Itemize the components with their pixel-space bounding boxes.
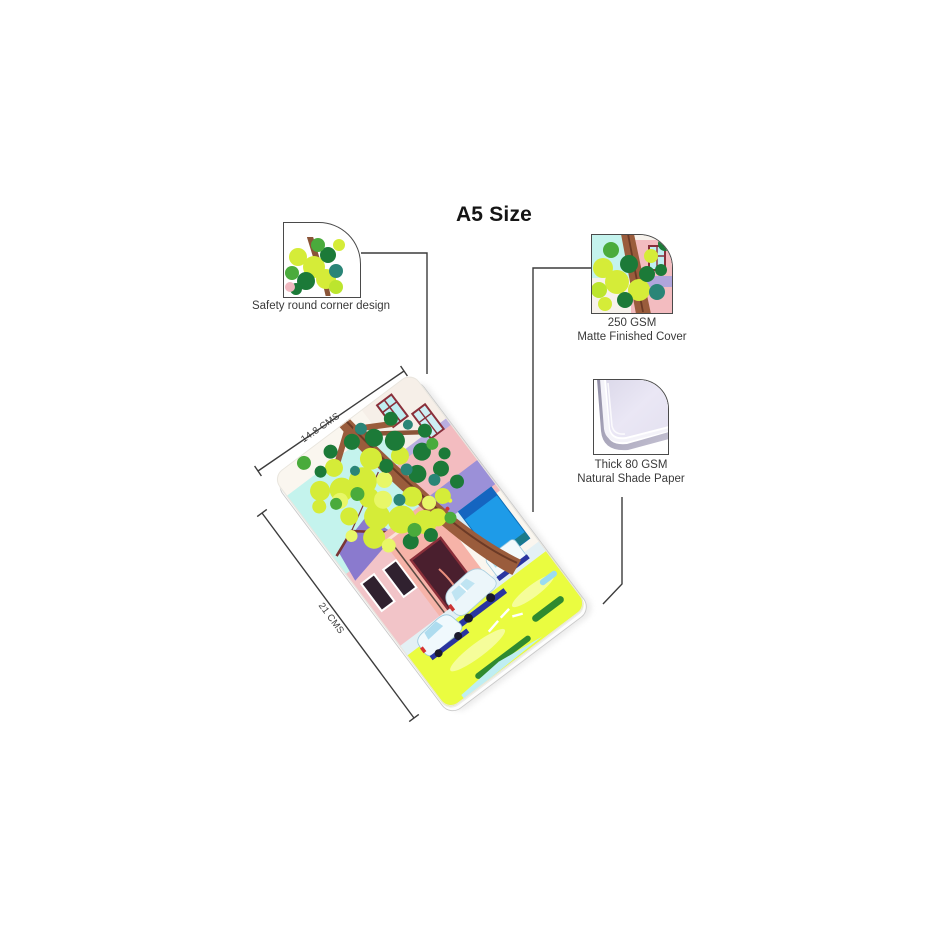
cover-swatch <box>591 234 673 314</box>
paper-caption-line2: Natural Shade Paper <box>550 472 712 486</box>
round-corner-caption: Safety round corner design <box>240 299 402 313</box>
page-title: A5 Size <box>394 203 594 227</box>
round-corner-art <box>284 237 345 296</box>
paper-caption: Thick 80 GSM Natural Shade Paper <box>550 458 712 486</box>
cover-corner-art <box>591 234 673 314</box>
paper-swatch <box>593 379 669 455</box>
notebook <box>180 300 660 760</box>
product-infographic: A5 Size <box>0 0 940 940</box>
cover-caption: 250 GSM Matte Finished Cover <box>551 316 713 344</box>
cover-caption-line1: 250 GSM <box>551 316 713 330</box>
cover-caption-line2: Matte Finished Cover <box>551 330 713 344</box>
paper-corner-art <box>593 379 669 455</box>
paper-caption-line1: Thick 80 GSM <box>550 458 712 472</box>
round-corner-swatch <box>283 222 361 298</box>
